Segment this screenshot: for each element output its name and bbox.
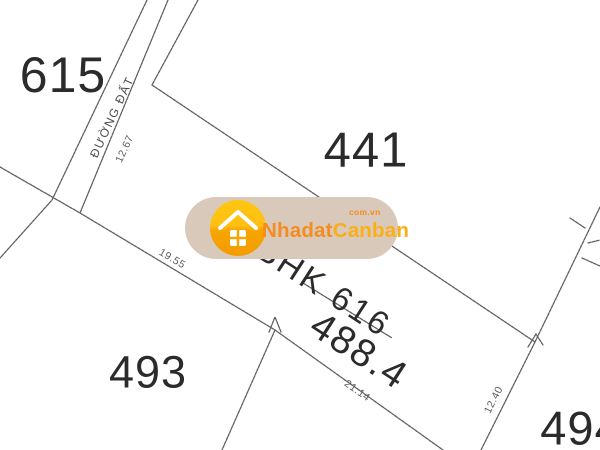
brand-secondary-text: Canban: [333, 219, 409, 242]
house-icon: [210, 200, 266, 256]
road-left-edge-line: [0, 0, 147, 258]
cadastral-map: 615 441 493 494 BHK616 488.4 ĐƯỜNG ĐẤT 1…: [0, 0, 600, 450]
edge-stub-line-3: [582, 258, 600, 266]
parcel-label-494: 494: [540, 405, 600, 450]
brand-primary-text: Nhadat: [262, 219, 333, 242]
boundary-493-east-line: [222, 330, 275, 450]
watermark-brand-text: NhadatCanban: [262, 219, 409, 243]
watermark-domain-suffix: com.vn: [349, 207, 381, 217]
parcel-label-441: 441: [324, 127, 409, 176]
boundary-615-493-line: [0, 167, 80, 213]
edge-stub-line-1: [570, 218, 585, 228]
house-logo-icon: [210, 200, 266, 256]
edge-stub-line-2: [588, 240, 600, 243]
spacer: [318, 297, 328, 304]
parcel-label-493: 493: [109, 350, 187, 395]
parcel-label-615: 615: [20, 50, 106, 100]
watermark-badge: NhadatCanban com.vn: [185, 197, 398, 259]
plot-northeast-side-line: [535, 207, 600, 342]
boundary-441-west-line: [152, 0, 198, 85]
